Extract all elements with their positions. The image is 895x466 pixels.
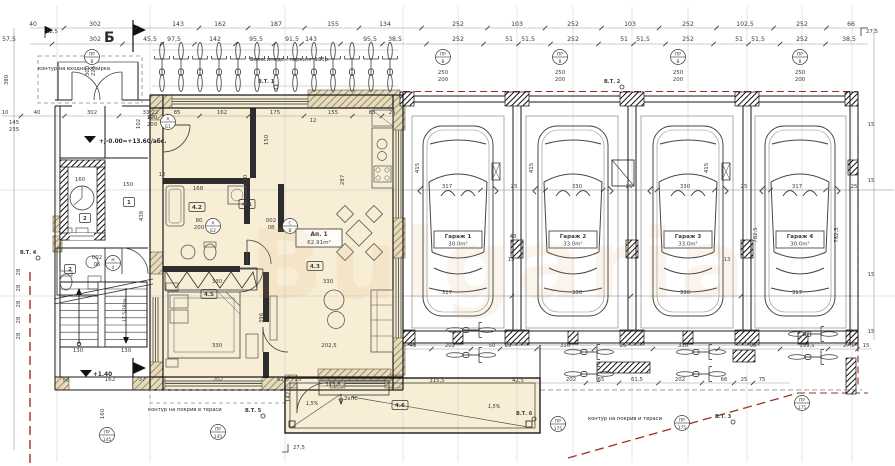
partition-wall xyxy=(163,266,240,272)
dimension-text: 160 xyxy=(75,177,86,183)
dimension-text: 51 xyxy=(735,36,743,43)
dimension-text: 002 xyxy=(92,255,102,261)
room-label: 4.1 xyxy=(242,202,252,208)
bt-marker: В.Т. 3 xyxy=(715,414,732,420)
dimension-text: 150 xyxy=(123,182,134,188)
dimension-text: 200 xyxy=(147,122,158,128)
canopy-note: контур на входна козирка xyxy=(38,66,110,72)
bt-marker: В.Т. 5 xyxy=(245,408,262,414)
dimension-text: 187 xyxy=(270,21,282,28)
dimension-text: 170 xyxy=(243,174,249,185)
dimension-text: 415 xyxy=(704,163,710,173)
dimension-text: 51 xyxy=(620,36,628,43)
bt-marker-point xyxy=(36,256,40,260)
section-marker: Б xyxy=(104,30,115,46)
drain-label: 2хЛС xyxy=(344,396,358,402)
bt-marker-point xyxy=(261,414,265,418)
dimension-text: 315,5 xyxy=(429,378,444,384)
bicycle-icon xyxy=(565,345,614,360)
elevator-wall xyxy=(97,160,105,240)
dimension-text: 134 xyxy=(379,21,391,28)
door-tag-top: А xyxy=(167,117,170,123)
dimension-text: 75 xyxy=(759,377,766,383)
bt-marker: В.Т. 1 xyxy=(258,79,275,85)
dimension-text: 28 xyxy=(16,332,22,339)
dimension-text: 155 xyxy=(328,110,338,116)
dimension-text: 51,5 xyxy=(521,36,535,43)
wall-hatch xyxy=(150,252,163,274)
dimension-text: 200 xyxy=(673,77,684,83)
door-tag-bottom: 175 xyxy=(554,426,562,432)
pier-hatch xyxy=(846,358,856,394)
dimension-text: 12 xyxy=(159,172,166,178)
dimension-text: 28 xyxy=(16,284,22,291)
room-label: 2 xyxy=(83,216,87,222)
dimension-text: 438 xyxy=(139,210,145,221)
room-label: 4.6 xyxy=(395,403,405,409)
bt-marker: В.Т. 2 xyxy=(604,79,621,85)
door-tag-bottom: 175 xyxy=(798,405,806,411)
dimension-text: 250 xyxy=(795,70,806,76)
dimension-text: 142 xyxy=(209,36,221,43)
room-label: 4.5 xyxy=(204,292,214,298)
dimension-text: 235 xyxy=(9,127,19,133)
dimension-text: 28 xyxy=(16,300,22,307)
dimension-text: 130 xyxy=(121,348,132,354)
dimension-text: 06 xyxy=(94,262,101,268)
bt-marker: В.Т. 4 xyxy=(20,250,37,256)
level-stair-label: +1.40 xyxy=(93,372,112,378)
dimension-text: 85 xyxy=(174,110,181,116)
dimension-text: 302 xyxy=(89,36,101,43)
dimension-text: 83 xyxy=(369,110,376,116)
dimension-text: 415 xyxy=(415,163,421,173)
door-tag-top: ПР xyxy=(797,52,803,58)
door-tag-top: ПР xyxy=(215,427,221,433)
dimension-text: 250 xyxy=(438,70,449,76)
dimension-text: 15 xyxy=(868,178,875,184)
dimension-text: 782,5 xyxy=(834,227,840,242)
dimension-text: 330 xyxy=(680,184,691,190)
dimension-text: 302 xyxy=(87,110,97,116)
elevator-wall xyxy=(60,160,105,167)
dimension-text: 202 xyxy=(445,343,455,349)
pier-hatch xyxy=(735,92,759,106)
elevator-door xyxy=(70,233,94,240)
dimension-text: 252 xyxy=(682,21,694,28)
dimension-text: 252 xyxy=(452,21,464,28)
floor-plan-sheet: 40302143162187155134252103252103252102,5… xyxy=(0,0,895,466)
dimension-text: 330 xyxy=(678,343,689,349)
stair-arrow xyxy=(123,337,129,344)
dimension-text: 317 xyxy=(442,184,452,190)
dimension-text: 57,5 xyxy=(2,36,16,43)
dimension-text: 302 xyxy=(89,21,101,28)
dimension-text: 317 xyxy=(792,184,802,190)
pier-hatch xyxy=(845,92,858,106)
dimension-text: 91,5 xyxy=(285,36,299,43)
dimension-text: 202 xyxy=(566,377,576,383)
dimension-text: 252 xyxy=(567,21,579,28)
section-flag-left xyxy=(133,362,146,374)
dimension-text: 25 xyxy=(620,343,627,349)
dimension-text: 142 xyxy=(286,392,292,402)
dimension-text: 28 xyxy=(16,268,22,275)
bicycle-icon xyxy=(789,350,838,365)
dimension-text: 50 xyxy=(489,343,496,349)
dimension-text: 330 xyxy=(572,184,583,190)
roof-terrace-note-right: контур на покрив и тераси xyxy=(588,416,662,422)
dimension-text: 15 xyxy=(868,122,875,128)
floor-plan-drawing: 40302143162187155134252103252103252102,5… xyxy=(0,0,895,466)
roof-terrace-note-left: контур на покрив в тераси xyxy=(148,407,222,413)
stair-note: 17,5/28см. xyxy=(122,297,128,322)
slope-label-2: 1,5% xyxy=(488,404,501,410)
room-label: 2 xyxy=(68,267,72,273)
dimension-text: 102 xyxy=(136,119,142,129)
door-tag-top: ПР xyxy=(675,52,681,58)
dimension-text: 62,5 xyxy=(277,377,289,383)
dimension-text: 25 xyxy=(741,377,748,383)
dimension-text: 10 xyxy=(2,110,9,116)
room-label: 1 xyxy=(127,200,131,206)
dimension-text: 61,5 xyxy=(631,377,643,383)
door-tag-bottom: 175 xyxy=(678,425,686,431)
dimension-text: 66 xyxy=(847,21,855,28)
door-tag-bottom: В xyxy=(677,59,680,65)
dimension-text: 15 xyxy=(868,272,875,278)
bt-marker-point xyxy=(274,85,278,89)
door-tag-top: А xyxy=(212,221,215,227)
dimension-text: 15 xyxy=(863,343,870,349)
dimension-text: 782,5 xyxy=(753,227,759,242)
dimension-text: 143 xyxy=(305,36,317,43)
elevator-wall xyxy=(60,160,68,240)
door-tag-top: ПР xyxy=(557,52,563,58)
level-symbol xyxy=(80,370,92,377)
dimension-text: 66 xyxy=(721,377,728,383)
dimension-text: 45 xyxy=(410,343,417,349)
dimension-text: 160 xyxy=(100,408,106,419)
bt-marker-point xyxy=(620,85,624,89)
dimension-text: 250 xyxy=(673,70,684,76)
door-tag-bottom: В xyxy=(559,59,562,65)
dimension-text: 25 xyxy=(389,110,396,116)
dimension-text: 25 xyxy=(851,184,858,190)
wall-hatch xyxy=(308,90,400,108)
level-symbol xyxy=(84,136,96,143)
dimension-text: 252 xyxy=(452,36,464,43)
dimension-text: 25 xyxy=(511,184,518,190)
room-label: 4.2 xyxy=(192,205,202,211)
dimension-text: 25 xyxy=(741,184,748,190)
dimension-text: 103 xyxy=(511,21,523,28)
bt-marker: В.Т. 6 xyxy=(516,411,533,417)
dimension-text: 202,5 xyxy=(321,343,336,349)
door-tag-top: Н xyxy=(111,258,114,264)
garage-area: 30.0m² xyxy=(790,241,809,248)
dimension-text: 65 xyxy=(598,377,605,383)
dimension-text: 168 xyxy=(193,186,204,192)
dimension-text: 27,5 xyxy=(866,29,878,35)
dimension-text: 90 xyxy=(750,343,757,349)
door-tag-top: ПР xyxy=(89,52,95,58)
dimension-text: 25 xyxy=(295,377,302,383)
partition-wall xyxy=(163,178,250,184)
dimension-text: 313,5 xyxy=(325,382,340,388)
slope-label-1: 1,5% xyxy=(306,401,319,407)
door-tag-top: ПР xyxy=(799,398,805,404)
dimension-text: 42,5 xyxy=(512,378,524,384)
door-tag-bottom: 145 xyxy=(103,437,111,443)
door-tag-bottom: В xyxy=(91,59,94,65)
door-tag-bottom: В xyxy=(799,59,802,65)
dimension-text: 51,5 xyxy=(751,36,765,43)
garage-name: Гараж 4 xyxy=(787,234,814,240)
dimension-text: 150 xyxy=(264,134,270,145)
dimension-text: 12,5 xyxy=(46,29,58,35)
dimension-text: 102,5 xyxy=(736,21,754,28)
dimension-text: 95,5 xyxy=(249,36,263,43)
door-tag-bottom: 4 xyxy=(112,265,115,271)
dimension-text: 103 xyxy=(624,21,636,28)
dimension-text: 25 xyxy=(626,184,633,190)
dimension-text: 202 xyxy=(675,377,685,383)
pier-hatch xyxy=(620,92,644,106)
bike-parking-note: Велосипеден паркинг 13бр. xyxy=(250,57,330,63)
bicycle-icon xyxy=(789,327,838,342)
door-tag-bottom: Б1 xyxy=(165,124,171,130)
dimension-text: 27,5 xyxy=(293,445,305,451)
door-tag-top: ПР xyxy=(679,418,685,424)
dimension-text: 155 xyxy=(327,21,339,28)
dimension-text: 40 xyxy=(34,110,41,116)
dimension-text: 37 xyxy=(139,377,146,383)
dimension-text: 143 xyxy=(172,21,184,28)
partition-wall xyxy=(250,108,256,178)
dimension-text: 40 xyxy=(29,21,37,28)
dimension-text: 38,5 xyxy=(388,36,402,43)
dimension-text: 252 xyxy=(567,36,579,43)
dimension-text: 200 xyxy=(194,225,205,231)
door-tag-bottom: В xyxy=(442,59,445,65)
dimension-text: 199,5 xyxy=(799,343,814,349)
door-tag-top: ПР xyxy=(104,430,110,436)
dimension-text: 415 xyxy=(529,163,535,173)
dimension-text: 28 xyxy=(16,316,22,323)
dimension-text: 56 xyxy=(63,378,70,384)
dimension-text: 51,5 xyxy=(636,36,650,43)
dimension-text: 15 xyxy=(868,329,875,335)
dimension-text: 97,5 xyxy=(167,36,181,43)
door-tag-bottom: Б2 xyxy=(210,228,216,234)
dimension-text: 252 xyxy=(796,36,808,43)
watermark: Bulgaria xyxy=(250,209,751,321)
dimension-text: 25 xyxy=(505,343,512,349)
dimension-text: 45,5 xyxy=(143,36,157,43)
car-top-view xyxy=(760,126,840,316)
dimension-text: 252 xyxy=(682,36,694,43)
stairs xyxy=(54,279,153,347)
dimension-text: 330 xyxy=(212,279,223,285)
dimension-text: 252 xyxy=(796,21,808,28)
dimension-text: 95,5 xyxy=(363,36,377,43)
pier-hatch xyxy=(400,92,414,106)
dimension-text: 200 xyxy=(555,77,566,83)
dimension-text: 80 xyxy=(196,218,203,224)
dimension-text: 200 xyxy=(795,77,806,83)
level-zero-label: +/-0.00=+13.60/абс. xyxy=(99,138,166,145)
door-tag-top: ПР xyxy=(440,52,446,58)
dimension-text: 330 xyxy=(560,343,571,349)
door-tag-top: ПР xyxy=(555,419,561,425)
dimension-text: 130 xyxy=(73,348,84,354)
dimension-text: 162 xyxy=(217,110,227,116)
dimension-text: 287 xyxy=(340,175,346,185)
dimension-text: 330 xyxy=(212,343,223,349)
dimension-text: 380 xyxy=(4,74,10,85)
dimension-text: 12 xyxy=(310,118,317,124)
dimension-text: 175 xyxy=(270,110,280,116)
dimension-text: 51 xyxy=(505,36,513,43)
door-tag-bottom: 145 xyxy=(214,434,222,440)
dimension-text: 317 xyxy=(792,290,802,296)
dimension-text: 202 xyxy=(213,377,223,383)
bicycle-icon xyxy=(447,348,496,363)
dimension-text: 200 xyxy=(438,77,449,83)
dimension-text: 38,5 xyxy=(842,36,856,43)
dimension-text: 145 xyxy=(9,120,19,126)
bt-marker-point xyxy=(731,420,735,424)
pier-hatch xyxy=(505,92,529,106)
partition-wall xyxy=(263,352,269,378)
pier-hatch xyxy=(733,350,755,362)
dimension-text: 162 xyxy=(214,21,226,28)
dimension-text: 27,5 xyxy=(843,343,855,349)
watermark-text: Bulgaria xyxy=(250,209,751,321)
dimension-text: 250 xyxy=(555,70,566,76)
